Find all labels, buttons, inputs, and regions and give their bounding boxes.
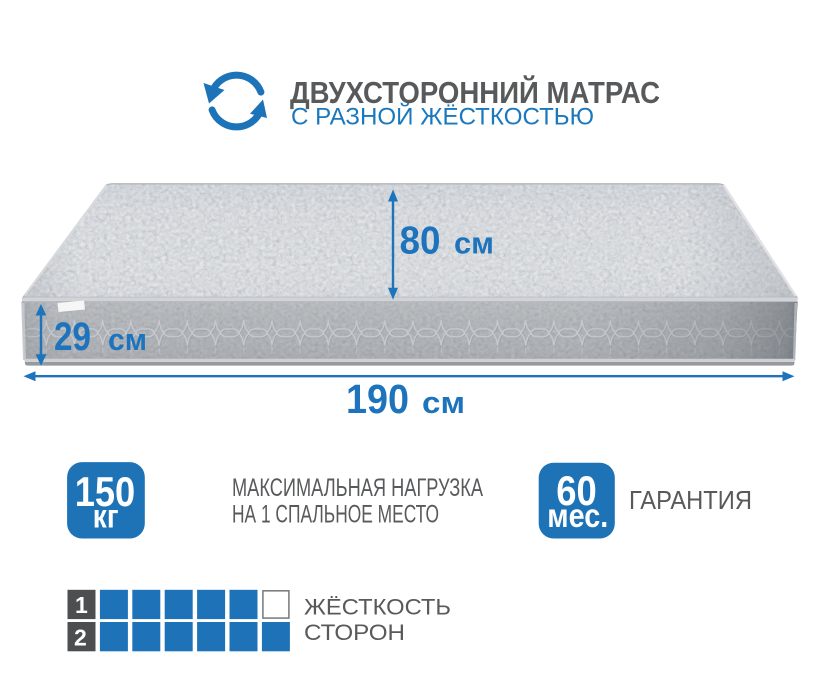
svg-text:ГАРАНТИЯ: ГАРАНТИЯ: [629, 485, 752, 515]
svg-text:мес.: мес.: [547, 498, 608, 535]
svg-text:см: см: [108, 322, 147, 357]
svg-text:кг: кг: [93, 498, 119, 535]
svg-text:см: см: [422, 385, 465, 420]
svg-text:С РАЗНОЙ ЖЁСТКОСТЬЮ: С РАЗНОЙ ЖЁСТКОСТЬЮ: [291, 103, 594, 131]
svg-text:см: см: [454, 226, 494, 261]
svg-text:МАКСИМАЛЬНАЯ НАГРУЗКА: МАКСИМАЛЬНАЯ НАГРУЗКА: [232, 474, 483, 502]
svg-text:СТОРОН: СТОРОН: [304, 620, 405, 645]
svg-text:2: 2: [74, 625, 87, 651]
svg-text:190: 190: [346, 376, 409, 422]
svg-text:НА 1 СПАЛЬНОЕ МЕСТО: НА 1 СПАЛЬНОЕ МЕСТО: [232, 500, 439, 528]
svg-text:29: 29: [54, 315, 91, 359]
svg-text:80: 80: [400, 220, 441, 263]
svg-text:ЖЁСТКОСТЬ: ЖЁСТКОСТЬ: [304, 595, 451, 620]
svg-text:1: 1: [75, 592, 88, 618]
